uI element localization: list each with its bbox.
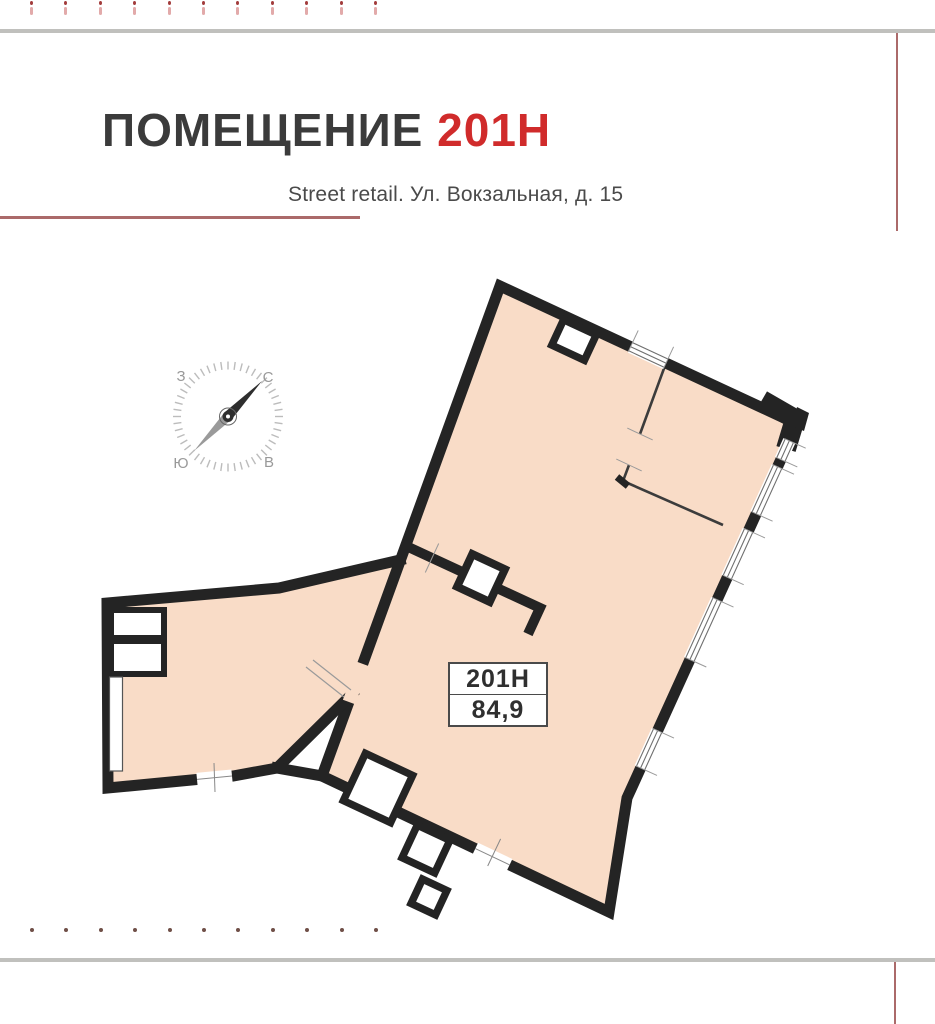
annex-strip [110,677,123,771]
compass-label-west: З [176,368,185,385]
floor-plan: З С Ю В [0,0,935,1024]
compass: З С Ю В [173,362,283,473]
unit-label-box: 201Н 84,9 [448,662,548,727]
wall-connector [277,768,322,776]
annex-box-2 [111,641,164,674]
compass-label-east: В [264,454,274,471]
bump-square-3 [411,879,447,915]
compass-label-south: Ю [173,455,188,472]
compass-label-north: С [263,369,274,386]
compass-hub-center [226,415,230,419]
unit-area: 84,9 [450,695,546,725]
annex-box-1 [111,610,164,638]
unit-number: 201Н [450,664,546,695]
flyer-page: { "header": { "title_main": "ПОМЕЩЕНИЕ",… [0,0,935,1024]
